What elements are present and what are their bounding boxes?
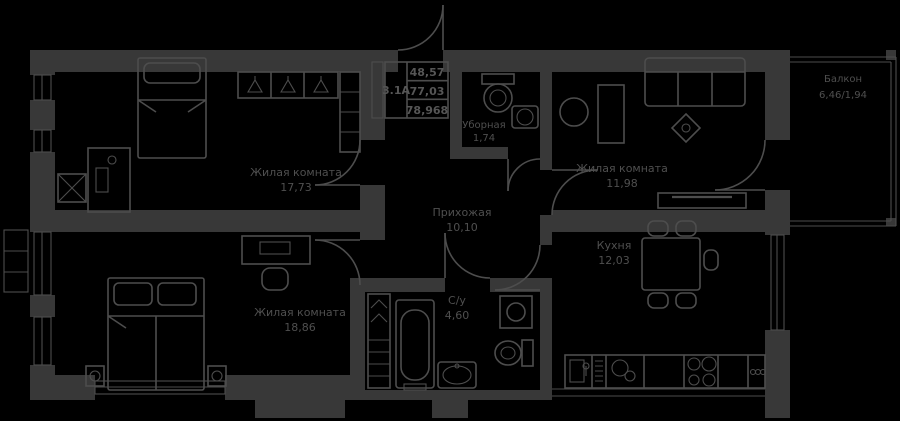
shelf-icon [340, 72, 360, 152]
room-area-living-3: 18,86 [284, 321, 316, 334]
kettle-icon [612, 360, 635, 381]
toilet-icon [482, 74, 514, 112]
room-area-balcony: 6,46/1,94 [819, 90, 867, 101]
floor-plan-svg: 3.1А 48,57 77,03 78,968 Жилая комната 17… [0, 0, 900, 421]
floor-plan: 3.1А 48,57 77,03 78,968 Жилая комната 17… [0, 0, 900, 421]
room-name-living-2: Жилая комната [576, 162, 668, 175]
sink-icon [570, 360, 589, 382]
unit-number: 3.1А [382, 84, 410, 97]
room-area-hallway: 10,10 [446, 221, 478, 234]
window-icon [552, 389, 765, 396]
stove-icon [688, 357, 716, 386]
window-icon [34, 130, 51, 152]
total-area-with-balcony: 78,968 [406, 104, 448, 117]
kitchen-counter-icon [565, 355, 766, 388]
entrance-door-arc-icon [398, 5, 443, 50]
room-area-living-1: 17,73 [280, 181, 312, 194]
toilet-icon [495, 340, 533, 366]
control-knobs-icon [751, 370, 766, 375]
balcony-door-arc-icon [715, 140, 765, 190]
chair-icon [648, 293, 668, 308]
sink-icon [512, 106, 538, 128]
living-area-total: 48,57 [410, 66, 445, 79]
side-table-icon [672, 114, 700, 142]
window-icon [34, 232, 51, 295]
chair-icon [262, 268, 288, 290]
apartment-area: 77,03 [410, 85, 445, 98]
door-arc-icon [508, 159, 540, 191]
sink-icon [438, 362, 476, 388]
nightstand-icon [208, 366, 226, 386]
room-name-living-3: Жилая комната [254, 306, 346, 319]
desk-icon [598, 85, 624, 143]
room-area-living-2: 11,98 [606, 177, 638, 190]
room-area-kitchen: 12,03 [598, 254, 630, 267]
bathtub-icon [396, 300, 434, 390]
room-area-wc: 1,74 [473, 133, 495, 144]
door-arc-icon [552, 170, 597, 215]
room-name-wc: Уборная [462, 120, 505, 131]
desk-icon [242, 236, 310, 264]
wardrobe-icon [238, 72, 338, 98]
room-name-balcony: Балкон [824, 74, 862, 85]
desk-icon [88, 148, 130, 212]
room-name-kitchen: Кухня [597, 239, 632, 252]
chair-icon [704, 250, 718, 270]
chair-icon [560, 98, 588, 126]
bed-icon [138, 58, 206, 158]
unit-info-box: 3.1А 48,57 77,03 78,968 [372, 62, 448, 118]
double-bed-icon [108, 278, 204, 390]
window-icon [34, 317, 51, 365]
bath-cabinet-icon [368, 294, 390, 388]
dining-table-icon [642, 238, 700, 290]
room-name-living-1: Жилая комната [250, 166, 342, 179]
washing-machine-icon [500, 296, 532, 328]
window-icon [34, 75, 51, 100]
window-icon [771, 235, 784, 330]
window-icon [95, 381, 225, 394]
room-name-hallway: Прихожая [433, 206, 492, 219]
chair-icon [58, 174, 86, 202]
room-name-bathroom: С/у [448, 294, 466, 307]
chair-icon [676, 293, 696, 308]
dishwasher-icon [595, 361, 603, 381]
door-arc-icon [445, 233, 490, 278]
tv-stand-icon [658, 193, 746, 208]
room-area-bathroom: 4,60 [445, 309, 470, 322]
radiator-icon [4, 230, 28, 292]
